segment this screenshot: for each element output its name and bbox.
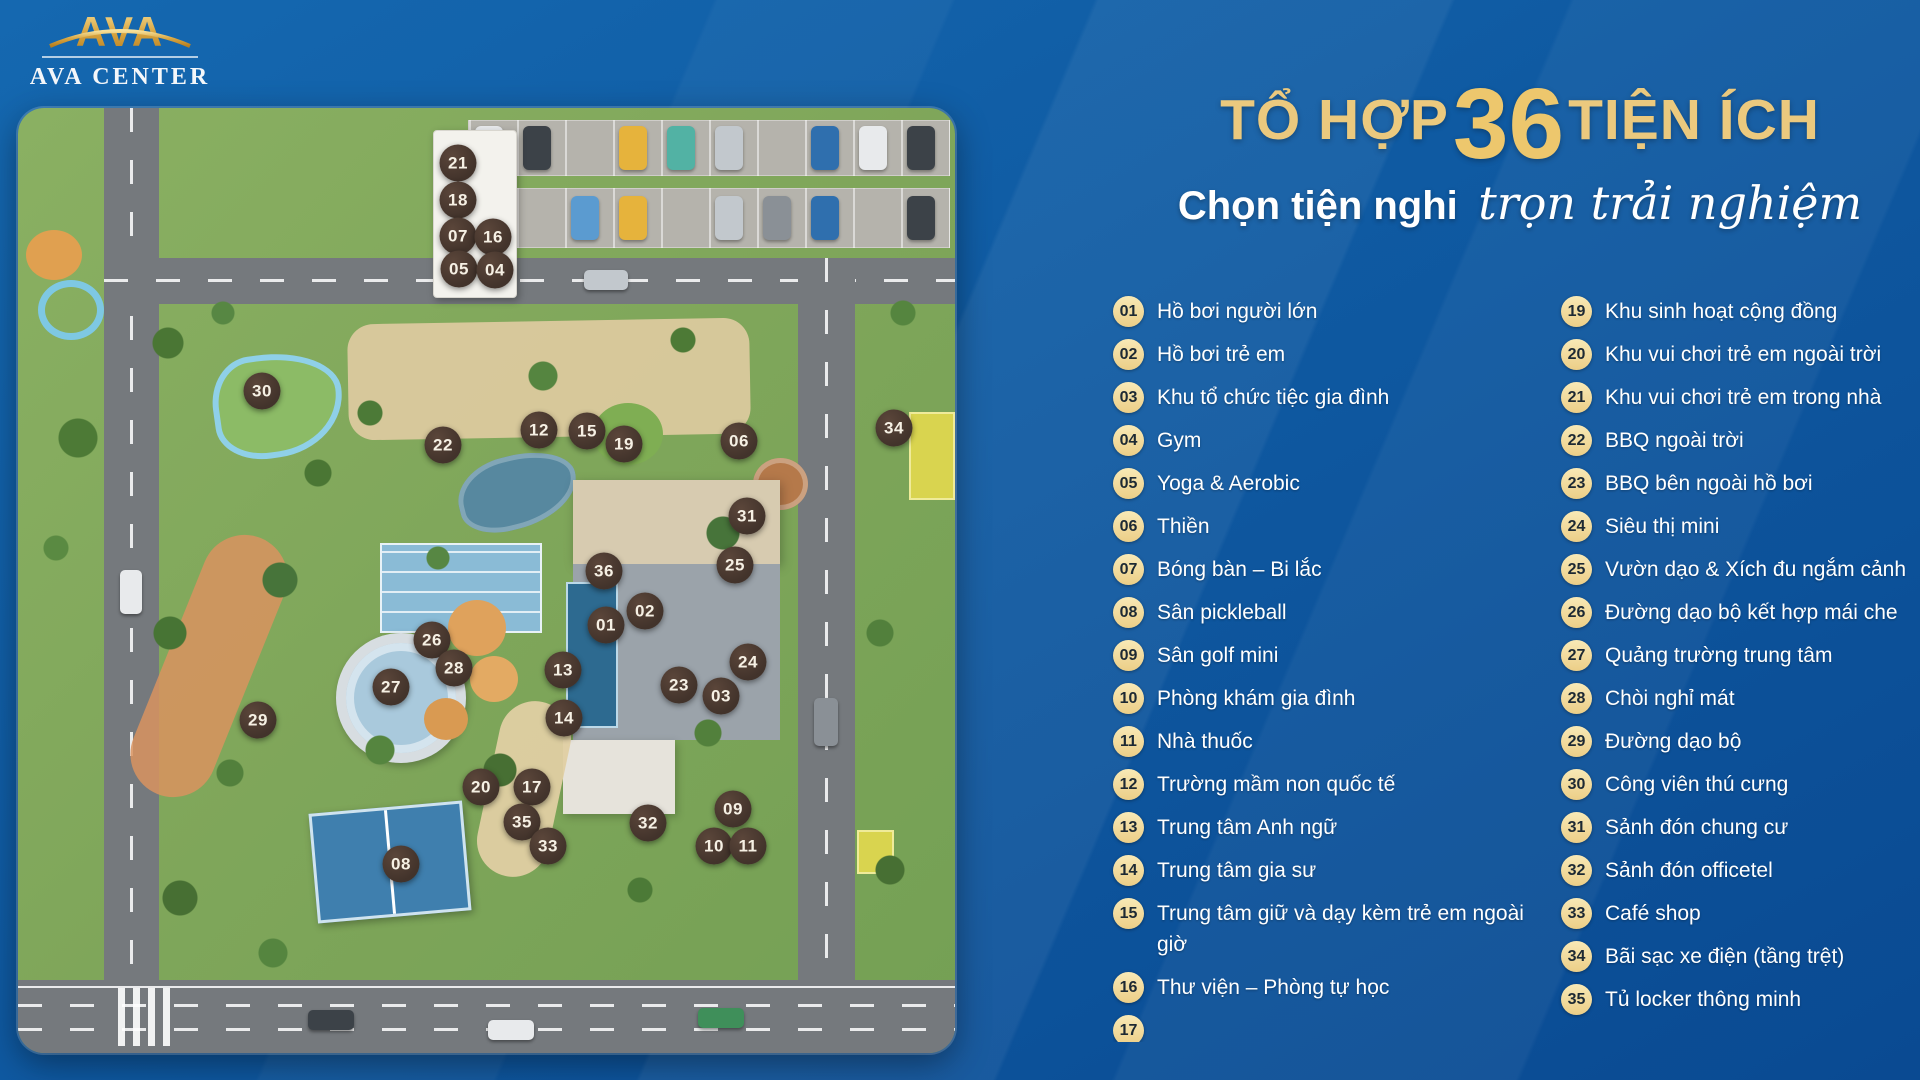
map-marker-layer: 2118071605043022121519063431362502012628…: [18, 108, 955, 1053]
amenity-item-06: 06Thiền: [1113, 511, 1553, 542]
amenity-item-15: 15Trung tâm giữ và dạy kèm trẻ em ngoài …: [1113, 898, 1553, 960]
map-marker-08: 08: [383, 846, 420, 883]
amenity-number: 10: [1113, 683, 1144, 714]
amenity-number: 26: [1561, 597, 1592, 628]
amenity-number: 27: [1561, 640, 1592, 671]
amenity-item-partial: 17: [1113, 1015, 1553, 1042]
map-marker-21: 21: [440, 145, 477, 182]
amenity-label: Yoga & Aerobic: [1157, 468, 1300, 499]
map-marker-11: 11: [730, 828, 767, 865]
amenity-label: Trung tâm giữ và dạy kèm trẻ em ngoài gi…: [1157, 898, 1553, 960]
amenity-number: 31: [1561, 812, 1592, 843]
ava-center-amenities-infographic: AVA AVA CENTER TỔ HỢP 36 TIỆN ÍCH Chọn t…: [0, 0, 1920, 1080]
amenity-number: 23: [1561, 468, 1592, 499]
amenity-item-19: 19Khu sinh hoạt cộng đồng: [1561, 296, 1916, 327]
amenity-number: 16: [1113, 972, 1144, 1003]
amenity-number: 02: [1113, 339, 1144, 370]
amenity-item-04: 04Gym: [1113, 425, 1553, 456]
map-marker-13: 13: [545, 652, 582, 689]
amenity-number: 20: [1561, 339, 1592, 370]
map-marker-23: 23: [661, 667, 698, 704]
amenity-item-28: 28Chòi nghỉ mát: [1561, 683, 1916, 714]
map-marker-20: 20: [463, 769, 500, 806]
amenity-label: Thư viện – Phòng tự học: [1157, 972, 1389, 1003]
amenity-list-right: 19Khu sinh hoạt cộng đồng20Khu vui chơi …: [1561, 296, 1916, 1027]
amenity-number: 34: [1561, 941, 1592, 972]
amenity-label: Sảnh đón officetel: [1605, 855, 1773, 886]
amenity-item-30: 30Công viên thú cưng: [1561, 769, 1916, 800]
amenity-label: Gym: [1157, 425, 1201, 456]
amenity-label: Trung tâm gia sư: [1157, 855, 1316, 886]
header: TỔ HỢP 36 TIỆN ÍCH Chọn tiện nghi trọn t…: [1130, 70, 1910, 230]
map-marker-28: 28: [436, 650, 473, 687]
map-marker-25: 25: [717, 547, 754, 584]
title-number: 36: [1453, 74, 1564, 174]
amenity-label: Khu tổ chức tiệc gia đình: [1157, 382, 1389, 413]
amenity-item-27: 27Quảng trường trung tâm: [1561, 640, 1916, 671]
map-marker-15: 15: [569, 413, 606, 450]
amenity-number-partial: 17: [1113, 1015, 1144, 1042]
amenity-item-20: 20Khu vui chơi trẻ em ngoài trời: [1561, 339, 1916, 370]
amenity-item-31: 31Sảnh đón chung cư: [1561, 812, 1916, 843]
site-map: 2118071605043022121519063431362502012628…: [18, 108, 955, 1053]
amenity-item-26: 26Đường dạo bộ kết hợp mái che: [1561, 597, 1916, 628]
subtitle-plain: Chọn tiện nghi: [1178, 184, 1458, 228]
amenity-label: Bãi sạc xe điện (tầng trệt): [1605, 941, 1844, 972]
map-marker-05: 05: [441, 251, 478, 288]
amenity-item-29: 29Đường dạo bộ: [1561, 726, 1916, 757]
amenity-label: Trung tâm Anh ngữ: [1157, 812, 1337, 843]
amenity-label: Khu vui chơi trẻ em ngoài trời: [1605, 339, 1881, 370]
amenity-number: 35: [1561, 984, 1592, 1015]
amenity-label: Sân golf mini: [1157, 640, 1278, 671]
amenity-number: 30: [1561, 769, 1592, 800]
logo-name: AVA CENTER: [30, 64, 211, 90]
map-marker-16: 16: [475, 219, 512, 256]
map-marker-34: 34: [876, 410, 913, 447]
amenity-label: Trường mầm non quốc tế: [1157, 769, 1395, 800]
map-marker-36: 36: [586, 553, 623, 590]
amenity-item-03: 03Khu tổ chức tiệc gia đình: [1113, 382, 1553, 413]
map-marker-14: 14: [546, 700, 583, 737]
amenity-number: 32: [1561, 855, 1592, 886]
amenity-number: 07: [1113, 554, 1144, 585]
amenity-item-14: 14Trung tâm gia sư: [1113, 855, 1553, 886]
amenity-item-34: 34Bãi sạc xe điện (tầng trệt): [1561, 941, 1916, 972]
amenity-item-08: 08Sân pickleball: [1113, 597, 1553, 628]
amenity-label: Đường dạo bộ kết hợp mái che: [1605, 597, 1898, 628]
amenity-item-09: 09Sân golf mini: [1113, 640, 1553, 671]
amenity-item-21: 21Khu vui chơi trẻ em trong nhà: [1561, 382, 1916, 413]
amenity-label: Chòi nghỉ mát: [1605, 683, 1735, 714]
map-marker-01: 01: [588, 607, 625, 644]
map-marker-29: 29: [240, 702, 277, 739]
amenity-item-10: 10Phòng khám gia đình: [1113, 683, 1553, 714]
amenity-label: Tủ locker thông minh: [1605, 984, 1801, 1015]
amenity-number: 28: [1561, 683, 1592, 714]
map-marker-09: 09: [715, 791, 752, 828]
amenity-number: 33: [1561, 898, 1592, 929]
amenity-number: 09: [1113, 640, 1144, 671]
map-marker-19: 19: [606, 426, 643, 463]
amenity-number: 03: [1113, 382, 1144, 413]
amenity-number: 05: [1113, 468, 1144, 499]
amenity-label: Khu sinh hoạt cộng đồng: [1605, 296, 1837, 327]
amenity-item-16: 16Thư viện – Phòng tự học: [1113, 972, 1553, 1003]
amenity-number: 04: [1113, 425, 1144, 456]
map-marker-17: 17: [514, 769, 551, 806]
amenity-label: Khu vui chơi trẻ em trong nhà: [1605, 382, 1881, 413]
amenity-number: 01: [1113, 296, 1144, 327]
map-marker-04: 04: [477, 252, 514, 289]
amenity-item-07: 07Bóng bàn – Bi lắc: [1113, 554, 1553, 585]
map-marker-06: 06: [721, 423, 758, 460]
amenity-number: 14: [1113, 855, 1144, 886]
amenity-number: 24: [1561, 511, 1592, 542]
amenity-number: 29: [1561, 726, 1592, 757]
amenity-number: 25: [1561, 554, 1592, 585]
amenity-label: Hồ bơi trẻ em: [1157, 339, 1285, 370]
amenity-label: Đường dạo bộ: [1605, 726, 1741, 757]
title-suffix: TIỆN ÍCH: [1568, 92, 1820, 149]
ava-center-logo: AVA AVA CENTER: [20, 6, 220, 98]
amenity-number: 06: [1113, 511, 1144, 542]
amenity-number: 13: [1113, 812, 1144, 843]
amenity-label: Thiền: [1157, 511, 1210, 542]
map-marker-07: 07: [440, 218, 477, 255]
amenity-label: Vườn dạo & Xích đu ngắm cảnh: [1605, 554, 1906, 585]
amenity-item-33: 33Café shop: [1561, 898, 1916, 929]
amenity-label: Công viên thú cưng: [1605, 769, 1788, 800]
page-subtitle: Chọn tiện nghi trọn trải nghiệm: [1130, 176, 1910, 230]
amenity-item-12: 12Trường mầm non quốc tế: [1113, 769, 1553, 800]
amenity-item-35: 35Tủ locker thông minh: [1561, 984, 1916, 1015]
map-marker-10: 10: [696, 828, 733, 865]
map-marker-33: 33: [530, 828, 567, 865]
map-marker-30: 30: [244, 373, 281, 410]
map-marker-31: 31: [729, 498, 766, 535]
page-title: TỔ HỢP 36 TIỆN ÍCH: [1130, 70, 1910, 170]
subtitle-script: trọn trải nghiệm: [1478, 176, 1862, 230]
amenity-item-32: 32Sảnh đón officetel: [1561, 855, 1916, 886]
map-marker-24: 24: [730, 644, 767, 681]
amenity-label: Bóng bàn – Bi lắc: [1157, 554, 1322, 585]
amenity-label: Phòng khám gia đình: [1157, 683, 1355, 714]
amenity-label: Siêu thị mini: [1605, 511, 1719, 542]
map-marker-03: 03: [703, 678, 740, 715]
amenity-label: Café shop: [1605, 898, 1701, 929]
amenity-item-23: 23BBQ bên ngoài hồ bơi: [1561, 468, 1916, 499]
amenity-item-22: 22BBQ ngoài trời: [1561, 425, 1916, 456]
amenity-item-25: 25Vườn dạo & Xích đu ngắm cảnh: [1561, 554, 1916, 585]
amenity-item-11: 11Nhà thuốc: [1113, 726, 1553, 757]
amenity-number: 22: [1561, 425, 1592, 456]
amenity-item-05: 05Yoga & Aerobic: [1113, 468, 1553, 499]
amenity-item-13: 13Trung tâm Anh ngữ: [1113, 812, 1553, 843]
amenity-number: 19: [1561, 296, 1592, 327]
map-marker-12: 12: [521, 412, 558, 449]
title-prefix: TỔ HỢP: [1220, 92, 1449, 149]
amenity-number: 21: [1561, 382, 1592, 413]
map-marker-22: 22: [425, 427, 462, 464]
amenity-label: Sảnh đón chung cư: [1605, 812, 1788, 843]
amenity-number: 12: [1113, 769, 1144, 800]
amenity-item-02: 02Hồ bơi trẻ em: [1113, 339, 1553, 370]
amenity-item-01: 01Hồ bơi người lớn: [1113, 296, 1553, 327]
map-marker-18: 18: [440, 182, 477, 219]
amenity-number: 08: [1113, 597, 1144, 628]
map-marker-32: 32: [630, 805, 667, 842]
amenity-label: Hồ bơi người lớn: [1157, 296, 1317, 327]
amenity-number: 11: [1113, 726, 1144, 757]
map-marker-27: 27: [373, 669, 410, 706]
amenity-label: Nhà thuốc: [1157, 726, 1253, 757]
map-marker-02: 02: [627, 593, 664, 630]
amenity-label: Sân pickleball: [1157, 597, 1287, 628]
amenity-label: BBQ bên ngoài hồ bơi: [1605, 468, 1813, 499]
amenity-list-left: 01Hồ bơi người lớn02Hồ bơi trẻ em03Khu t…: [1113, 296, 1553, 1042]
amenity-item-24: 24Siêu thị mini: [1561, 511, 1916, 542]
amenity-label: Quảng trường trung tâm: [1605, 640, 1832, 671]
amenity-label: BBQ ngoài trời: [1605, 425, 1744, 456]
amenity-number: 15: [1113, 898, 1144, 929]
